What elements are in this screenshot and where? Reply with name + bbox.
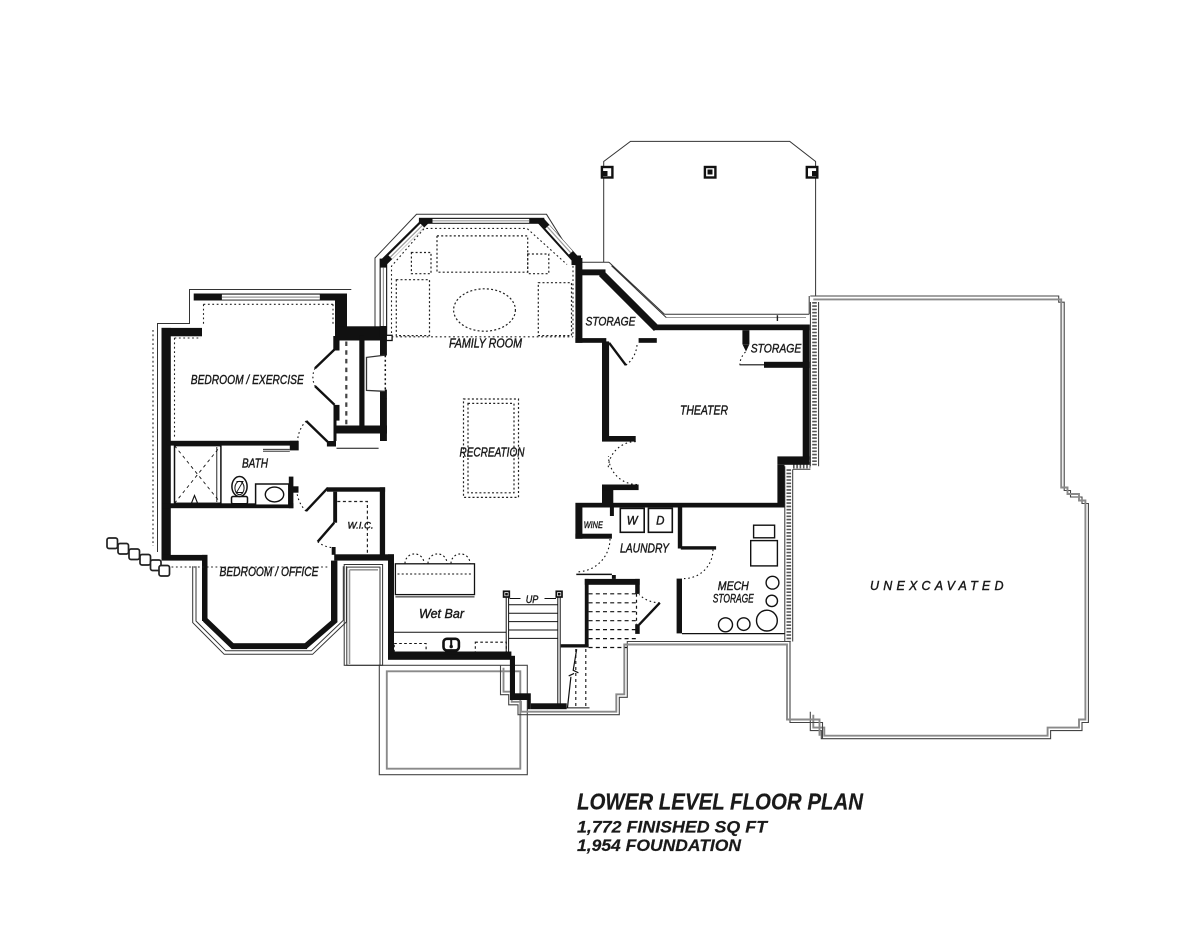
svg-text:Wet Bar: Wet Bar — [419, 606, 465, 621]
svg-text:RECREATION: RECREATION — [460, 446, 526, 460]
svg-text:BEDROOM / EXERCISE: BEDROOM / EXERCISE — [191, 373, 305, 387]
svg-text:STORAGE: STORAGE — [586, 315, 637, 329]
svg-text:THEATER: THEATER — [680, 403, 728, 417]
svg-text:STORAGE: STORAGE — [713, 594, 754, 606]
svg-text:1,772 FINISHED SQ FT: 1,772 FINISHED SQ FT — [577, 817, 769, 836]
svg-text:FAMILY ROOM: FAMILY ROOM — [449, 337, 522, 351]
svg-text:LOWER LEVEL FLOOR PLAN: LOWER LEVEL FLOOR PLAN — [577, 789, 863, 815]
svg-text:LAUNDRY: LAUNDRY — [620, 541, 670, 555]
svg-text:UP: UP — [526, 594, 539, 606]
svg-text:STORAGE: STORAGE — [751, 342, 802, 356]
svg-text:W: W — [627, 516, 639, 528]
svg-text:1,954 FOUNDATION: 1,954 FOUNDATION — [577, 836, 742, 855]
svg-text:BATH: BATH — [242, 456, 269, 470]
svg-text:WINE: WINE — [584, 520, 604, 530]
svg-text:BEDROOM / OFFICE: BEDROOM / OFFICE — [220, 565, 320, 579]
svg-text:D: D — [656, 516, 664, 528]
svg-text:W.I.C.: W.I.C. — [348, 521, 374, 531]
svg-text:UNEXCAVATED: UNEXCAVATED — [870, 579, 1010, 593]
svg-text:MECH: MECH — [718, 581, 750, 593]
